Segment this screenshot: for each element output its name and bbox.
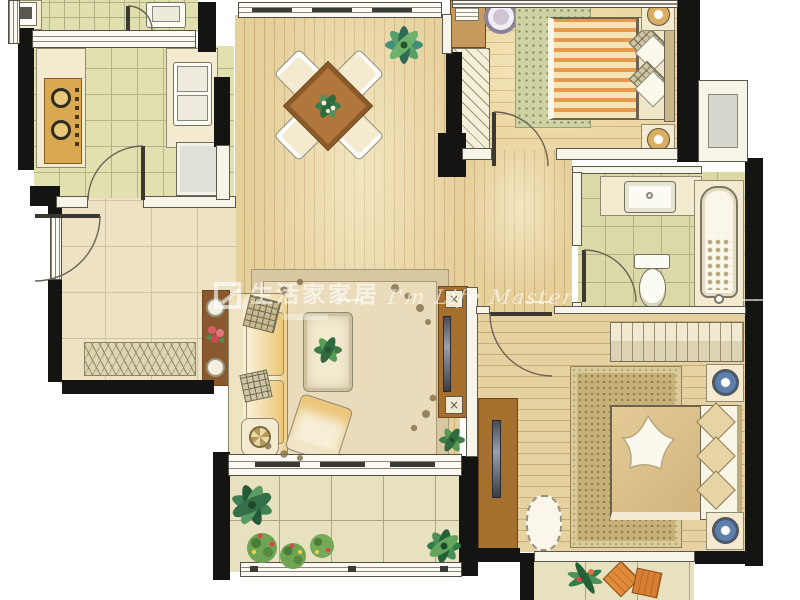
watermark-dash: —— xyxy=(336,290,362,308)
master-wardrobe xyxy=(610,322,744,362)
window xyxy=(32,30,196,48)
side-table-inlay xyxy=(249,426,271,448)
window xyxy=(8,0,20,44)
speaker-icon: × xyxy=(445,396,463,414)
wall xyxy=(677,0,700,162)
stove-knobs xyxy=(75,86,79,146)
watermark-dash: —— xyxy=(524,292,550,310)
window-frame-segment xyxy=(252,8,292,12)
master-bed-duvet xyxy=(610,405,702,520)
sink-bowl xyxy=(177,66,208,92)
wall xyxy=(695,551,747,564)
wall xyxy=(214,77,230,147)
burner-icon xyxy=(51,120,71,140)
coffee-table xyxy=(303,312,353,392)
wall xyxy=(62,380,214,394)
wall-band xyxy=(554,306,746,314)
window-frame-segment xyxy=(390,462,435,467)
wall-band xyxy=(556,148,678,160)
wall xyxy=(198,2,216,52)
bedroom2-bed-duvet xyxy=(548,17,638,120)
doormat xyxy=(84,342,196,376)
bathtub-antislip-dots xyxy=(706,238,732,290)
window-frame-segment xyxy=(320,462,365,467)
sink-bowl xyxy=(177,95,208,121)
wall xyxy=(478,548,520,562)
laundry-basin-bowl xyxy=(152,6,180,22)
wall-band xyxy=(572,172,582,246)
wall-band xyxy=(534,551,695,562)
headboard xyxy=(664,15,675,122)
bathtub-faucet xyxy=(714,294,724,304)
brand-logo-icon xyxy=(214,282,241,309)
railing-post xyxy=(348,566,356,572)
wall-band xyxy=(216,145,230,200)
window-frame-segment xyxy=(312,8,352,12)
window xyxy=(452,0,678,8)
bay-window-ledge xyxy=(708,94,738,148)
wall-band xyxy=(462,148,492,160)
wall xyxy=(18,28,34,170)
basin-drain xyxy=(646,192,653,199)
wall xyxy=(48,280,62,382)
toilet-tank xyxy=(634,254,670,269)
table-lamp-blue xyxy=(712,517,739,544)
wall-band xyxy=(56,196,88,208)
ottoman xyxy=(526,495,562,551)
window-frame-segment xyxy=(255,462,300,467)
throw-pillow xyxy=(239,369,272,402)
floor-plan: × × xyxy=(0,0,800,600)
wall xyxy=(446,52,462,136)
tv xyxy=(492,420,501,498)
wall-band xyxy=(442,14,452,54)
toilet-bowl xyxy=(639,268,666,308)
watermark-subtext-bar xyxy=(282,314,328,320)
window-frame-segment xyxy=(372,8,412,12)
wall xyxy=(520,553,534,600)
burner-icon xyxy=(51,88,71,108)
orange-cushion xyxy=(632,568,663,599)
wall-band xyxy=(572,166,702,174)
wall xyxy=(745,158,763,566)
watermark-dash: —— xyxy=(742,290,768,308)
refrigerator xyxy=(176,142,220,196)
railing-post xyxy=(250,566,258,572)
decor-plate xyxy=(206,358,225,377)
table-lamp-blue xyxy=(712,369,739,396)
main-balcony-floor xyxy=(228,476,460,572)
entry-door-opening xyxy=(50,216,62,280)
tv xyxy=(443,316,451,392)
railing-post xyxy=(440,566,448,572)
